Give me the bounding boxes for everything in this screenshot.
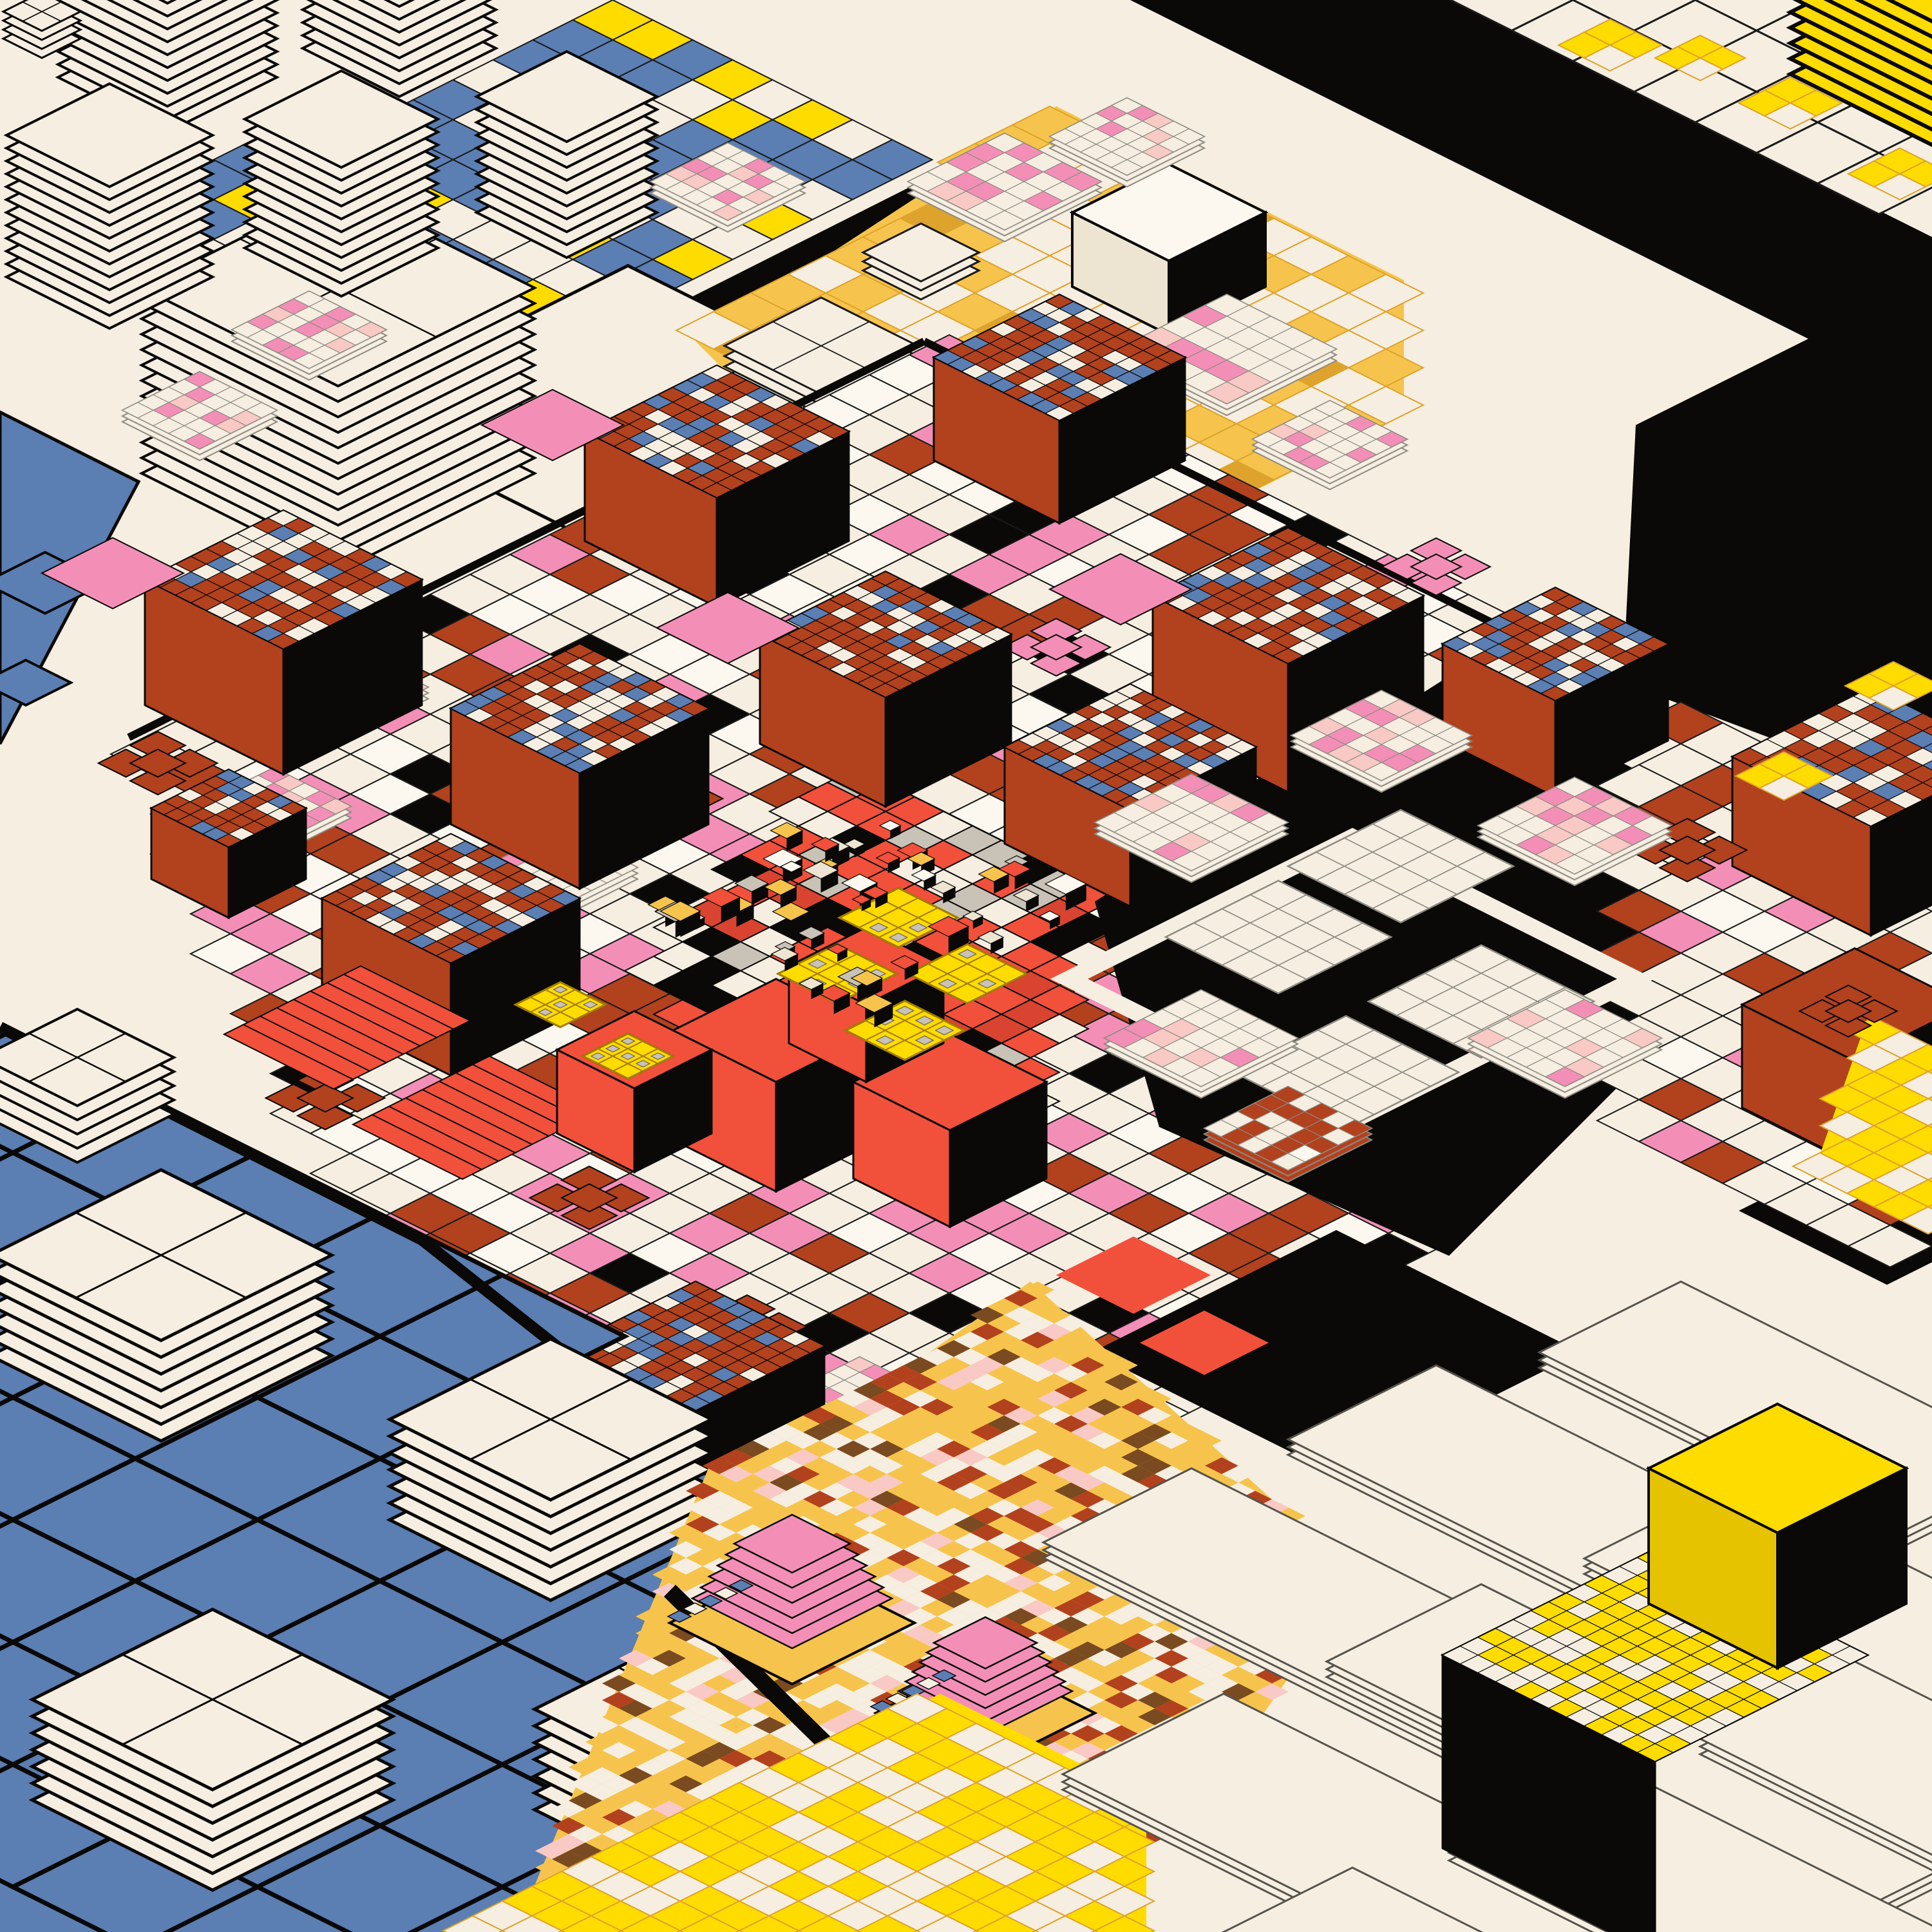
plate-stack	[245, 71, 438, 296]
plate-stack	[6, 84, 213, 328]
artwork-canvas	[0, 0, 1932, 1932]
plate-stack	[477, 52, 657, 258]
isometric-city-artwork	[0, 0, 1932, 1932]
